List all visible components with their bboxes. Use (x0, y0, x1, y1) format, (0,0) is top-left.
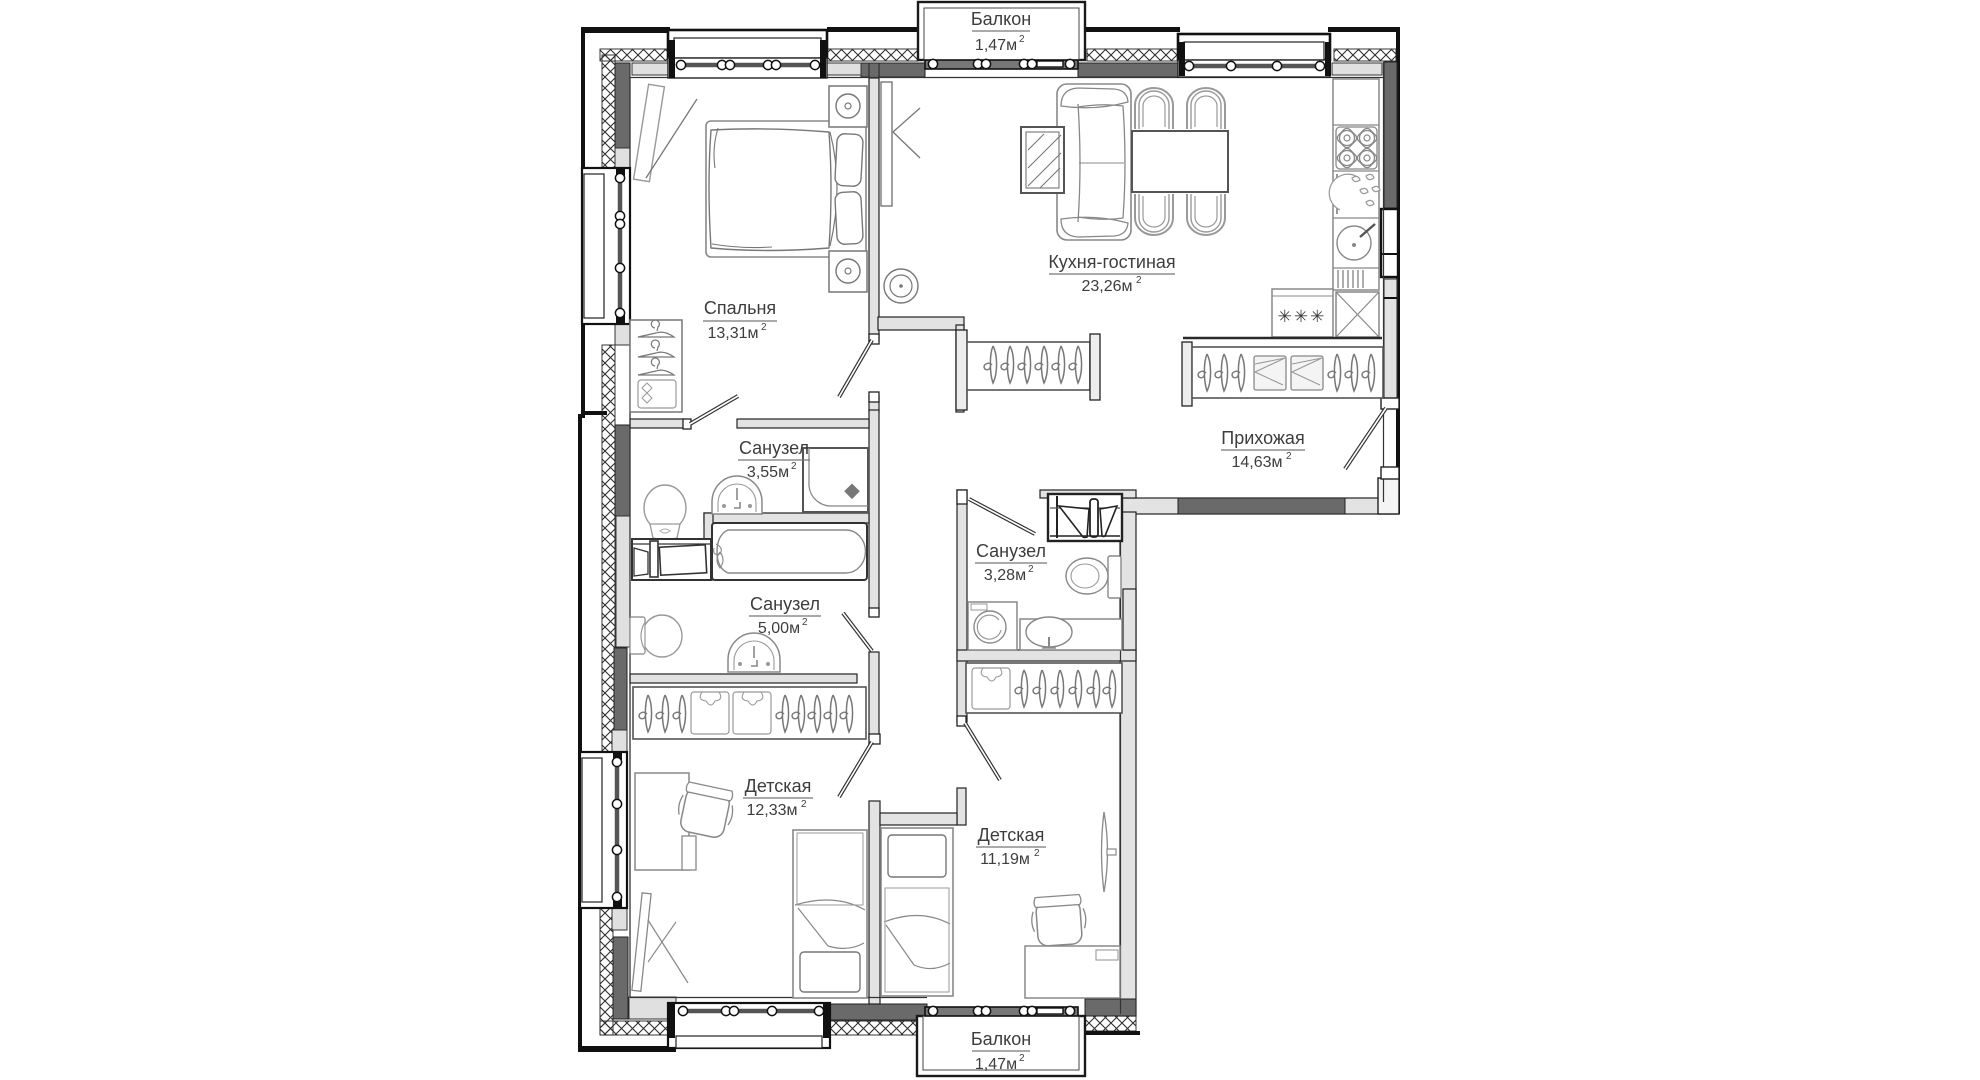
svg-text:2: 2 (1286, 451, 1292, 462)
svg-text:3,55м: 3,55м (747, 464, 789, 481)
svg-text:Кухня-гостиная: Кухня-гостиная (1048, 252, 1175, 272)
svg-text:2: 2 (802, 617, 808, 628)
svg-text:5,00м: 5,00м (758, 620, 800, 637)
svg-text:11,19м: 11,19м (980, 851, 1030, 868)
svg-text:2: 2 (1136, 275, 1142, 286)
svg-text:Детская: Детская (745, 776, 812, 796)
svg-text:Санузел: Санузел (976, 541, 1046, 561)
svg-text:✳✳✳: ✳✳✳ (1278, 307, 1327, 326)
svg-text:14,63м: 14,63м (1231, 454, 1282, 471)
svg-text:3,28м: 3,28м (984, 567, 1026, 584)
svg-text:Детская: Детская (978, 825, 1045, 845)
svg-text:2: 2 (1034, 848, 1040, 859)
svg-text:2: 2 (791, 461, 797, 472)
svg-text:Санузел: Санузел (750, 594, 820, 614)
svg-text:Прихожая: Прихожая (1221, 428, 1304, 448)
svg-text:Балкон: Балкон (971, 9, 1031, 29)
svg-text:Балкон: Балкон (971, 1029, 1031, 1049)
svg-text:1,47м: 1,47м (975, 1056, 1017, 1073)
svg-text:23,26м: 23,26м (1081, 278, 1132, 295)
svg-text:2: 2 (1019, 34, 1025, 45)
svg-text:Спальня: Спальня (704, 298, 776, 318)
svg-text:13,31м: 13,31м (707, 325, 758, 342)
svg-text:1,47м: 1,47м (975, 37, 1017, 54)
svg-text:12,33м: 12,33м (746, 802, 797, 819)
svg-text:Санузел: Санузел (739, 438, 809, 458)
svg-text:2: 2 (761, 322, 767, 333)
svg-text:2: 2 (801, 799, 807, 810)
svg-text:2: 2 (1028, 564, 1034, 575)
svg-text:2: 2 (1019, 1053, 1025, 1064)
